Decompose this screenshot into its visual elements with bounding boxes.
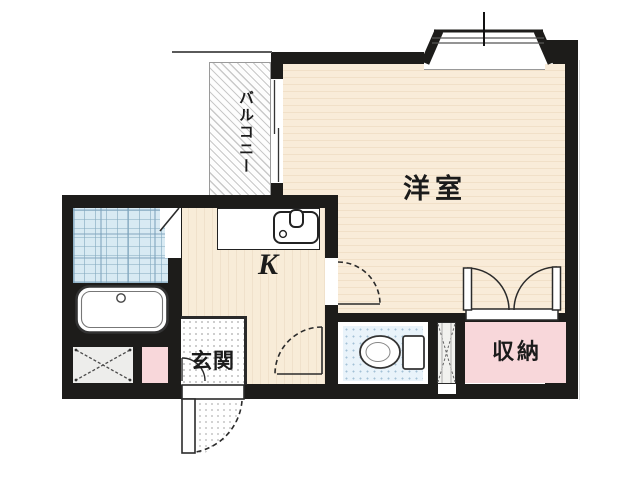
balcony-label: バルコニー — [224, 76, 256, 188]
balcony-window — [271, 79, 283, 183]
wall-room-bottom — [326, 313, 578, 322]
balcony-extension-line — [172, 51, 272, 53]
floor-plan: バルコニー 洋室 K 玄関 収納 — [0, 0, 640, 480]
wall-mid-horizontal — [62, 195, 338, 208]
wall-bottom — [244, 384, 578, 399]
kitchen-label: K — [258, 248, 278, 282]
wall-top — [272, 52, 424, 64]
western-room-label: 洋室 — [345, 167, 525, 206]
kitchen-counter — [217, 208, 320, 250]
toilet-room-floor — [343, 326, 423, 381]
bay-window-sill — [424, 52, 545, 70]
pipe-space — [437, 322, 456, 384]
washing-machine-pan — [73, 347, 133, 383]
bathroom-tile-area — [73, 208, 168, 283]
pipe-space-notch — [438, 384, 456, 394]
entrance-label: 玄関 — [182, 345, 244, 375]
entrance-hall-border-top — [181, 316, 247, 319]
entrance-hall-border-right — [244, 316, 247, 385]
bath-doorway — [165, 208, 181, 258]
right-wall-shadow — [579, 60, 580, 400]
wall-left — [62, 195, 73, 397]
utility-pink-strip — [142, 347, 168, 383]
entrance-door — [182, 385, 244, 457]
wall-balcony-jamb-upper — [271, 52, 283, 79]
storage-label: 収納 — [467, 334, 567, 366]
wall-ps-right — [456, 313, 465, 384]
room-doorway — [325, 258, 338, 305]
